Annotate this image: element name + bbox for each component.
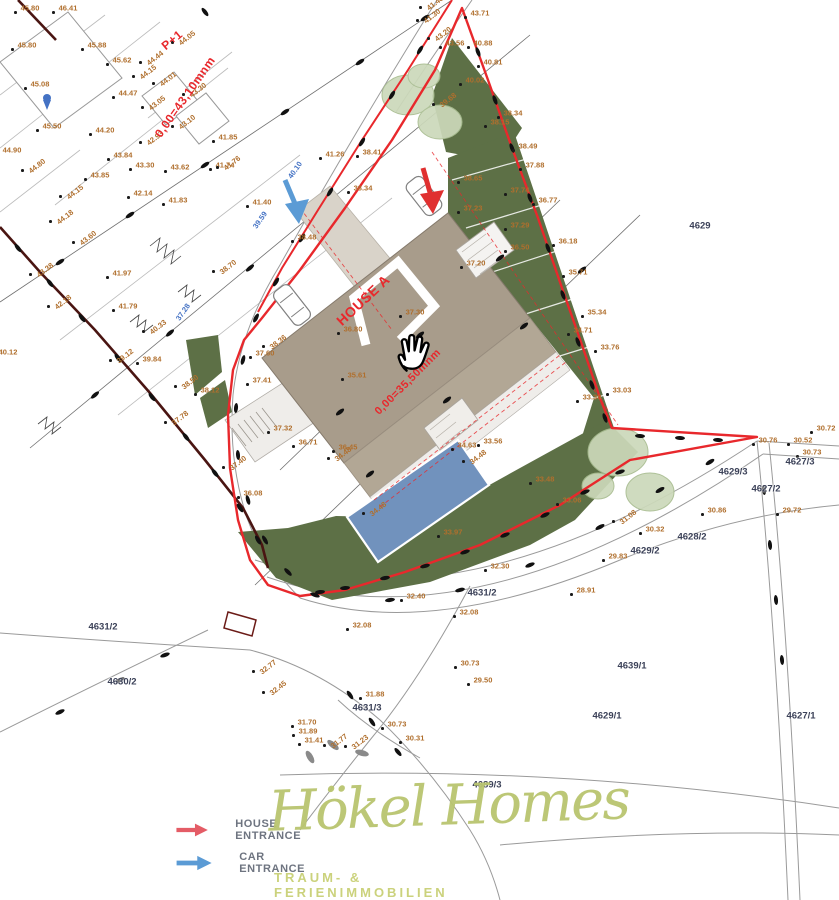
legend-car-entrance-arrow-icon [175,853,213,873]
legend-car-entrance-label: CAR ENTRANCE [239,851,315,875]
survey-mark [326,738,341,752]
survey-mark [345,690,354,700]
site-plan-canvas[interactable]: 46.4145.8045.8045.8845.6245.0844.4745.50… [0,0,839,900]
survey-mark [577,265,587,274]
survey-mark [200,161,211,170]
survey-mark [115,676,126,684]
site-plan-drawing [0,0,839,900]
legend-house-entrance-label: HOUSE ENTRANCE [235,818,315,842]
survey-mark [280,108,291,117]
survey-mark [200,7,209,17]
neighbour-buildings [0,12,229,144]
survey-mark [147,392,156,402]
open-hand-cursor-icon [393,329,439,375]
survey-mark [455,587,466,593]
survey-mark [181,432,190,442]
survey-mark [774,595,779,605]
survey-mark [236,450,241,460]
survey-mark [55,258,66,267]
survey-mark [675,436,685,441]
survey-mark [525,561,536,568]
junction-structure [224,612,256,636]
survey-mark [125,211,136,220]
survey-mark [245,263,255,272]
survey-mark [355,58,366,67]
survey-mark [705,458,716,467]
survey-mark [780,655,785,665]
survey-mark [90,390,100,399]
survey-mark [240,355,246,366]
survey-mark [416,45,425,56]
survey-mark [304,749,316,764]
survey-mark [245,495,251,506]
survey-mark [210,468,219,478]
survey-mark [45,278,54,288]
legend-item-house-entrance: HOUSE ENTRANCE [175,818,315,842]
legend-item-car-entrance: CAR ENTRANCE [175,851,315,875]
survey-mark [768,540,773,550]
legend-house-entrance-arrow-icon [175,820,209,840]
survey-mark [393,747,402,757]
survey-mark [420,14,431,23]
survey-mark [713,438,723,443]
survey-mark [13,243,22,253]
survey-mark [55,708,66,716]
survey-mark [385,597,395,602]
slope-hatch-marks [38,238,201,434]
survey-mark [165,328,175,337]
